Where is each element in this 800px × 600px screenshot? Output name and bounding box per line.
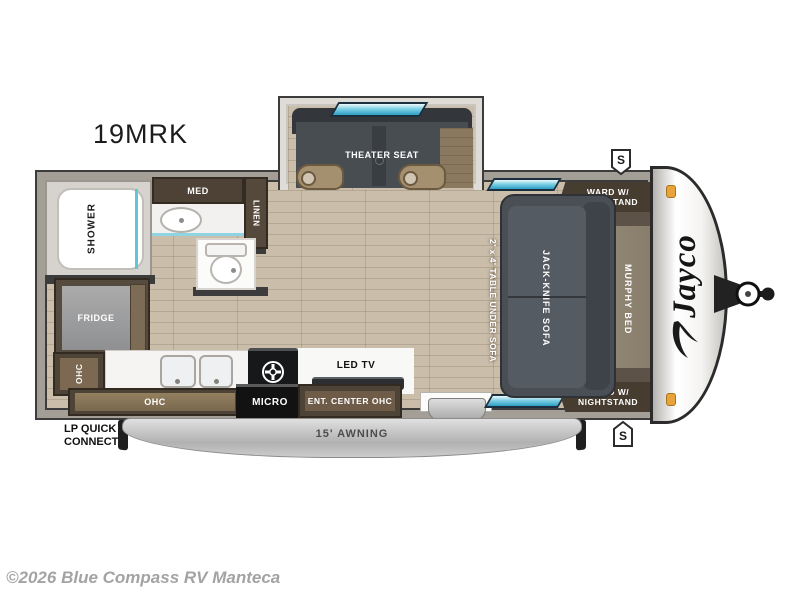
led-tv-label: LED TV [298, 360, 414, 371]
sofa-label: JACK-KNIFE SOFA [538, 220, 554, 376]
jayco-bird-icon [668, 320, 702, 360]
brand-logo: Jayco [664, 212, 706, 382]
kitchen-sink-right [199, 355, 233, 388]
speaker-icon: S [612, 420, 634, 448]
awning-label: 15' AWNING [123, 428, 581, 440]
speaker-icon: S [610, 148, 632, 176]
floorplan-page: 19MRK THEATER SEAT SHOWER MED LINEN FRID… [0, 0, 800, 600]
ohc-kitchen-label: OHC [75, 393, 235, 411]
slideout-window [330, 102, 429, 117]
linen-cabinet: LINEN [244, 177, 268, 249]
ent-center-label: ENT. CENTER OHC [305, 391, 395, 411]
window-top [486, 178, 562, 191]
microwave: MICRO [236, 384, 304, 418]
murphy-bed-label: MURPHY BED [620, 234, 636, 364]
copyright-text: ©2026 Blue Compass RV Manteca [6, 568, 280, 588]
lp-quick-connect-label: LP QUICK CONNECT [64, 423, 118, 448]
sofa-back [582, 202, 610, 390]
shower-glass [135, 189, 138, 269]
svg-text:S: S [617, 153, 625, 167]
theater-tray-left [296, 164, 344, 190]
page-title: 19MRK [93, 119, 188, 150]
counter-edge [152, 233, 244, 236]
ohc-side-label: OHC [60, 358, 98, 390]
table-label: 2' x 4' TABLE UNDER SOFA [486, 238, 500, 364]
theater-tray-right [398, 164, 446, 190]
fridge: FRIDGE [62, 286, 130, 350]
kitchen-sink-left [160, 355, 196, 388]
theater-seat-label: THEATER SEAT [296, 150, 468, 160]
awning: 15' AWNING [122, 418, 582, 458]
hitch [714, 272, 776, 316]
shower-label: SHOWER [84, 192, 100, 266]
bathroom-wall [193, 287, 268, 296]
marker-light-top [666, 185, 676, 198]
svg-text:S: S [619, 429, 627, 443]
jack-knife-sofa: JACK-KNIFE SOFA [500, 194, 616, 398]
burner-icon [260, 359, 286, 385]
toilet-bowl [210, 255, 242, 284]
bathroom-sink [160, 207, 202, 233]
marker-light-bottom [666, 393, 676, 406]
med-cabinet: MED [152, 177, 244, 204]
fridge-door [130, 284, 146, 352]
brand-logo-text: Jayco [667, 234, 704, 318]
shower-pan [57, 188, 144, 270]
